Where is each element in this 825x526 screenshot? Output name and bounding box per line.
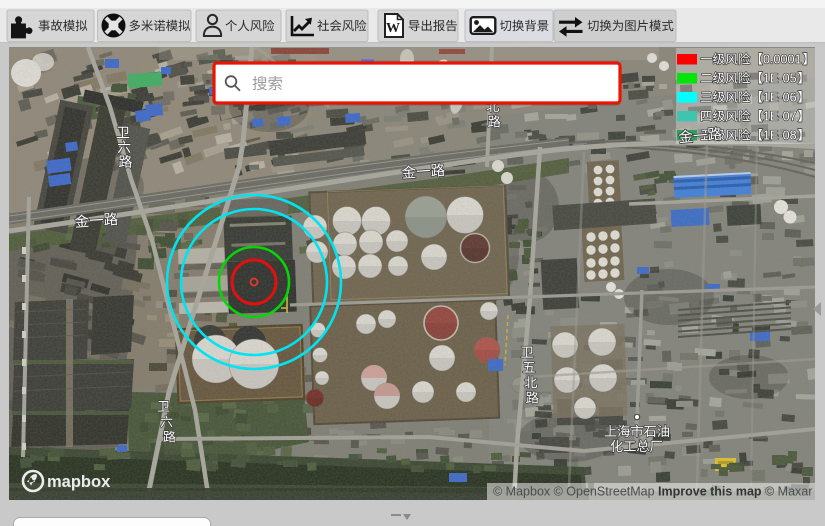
svg-text:1E-07: 1E-07: [763, 109, 797, 123]
svg-text:mapbox: mapbox: [47, 473, 111, 491]
svg-text:1E-06: 1E-06: [763, 90, 797, 104]
svg-text:1E-05: 1E-05: [763, 71, 797, 85]
svg-text:0.0001: 0.0001: [763, 52, 802, 66]
svg-text:W: W: [386, 21, 400, 36]
svg-text:© Mapbox © OpenStreetMap Impro: © Mapbox © OpenStreetMap Improve this ma…: [493, 485, 812, 499]
svg-text:1E-08: 1E-08: [763, 128, 797, 142]
